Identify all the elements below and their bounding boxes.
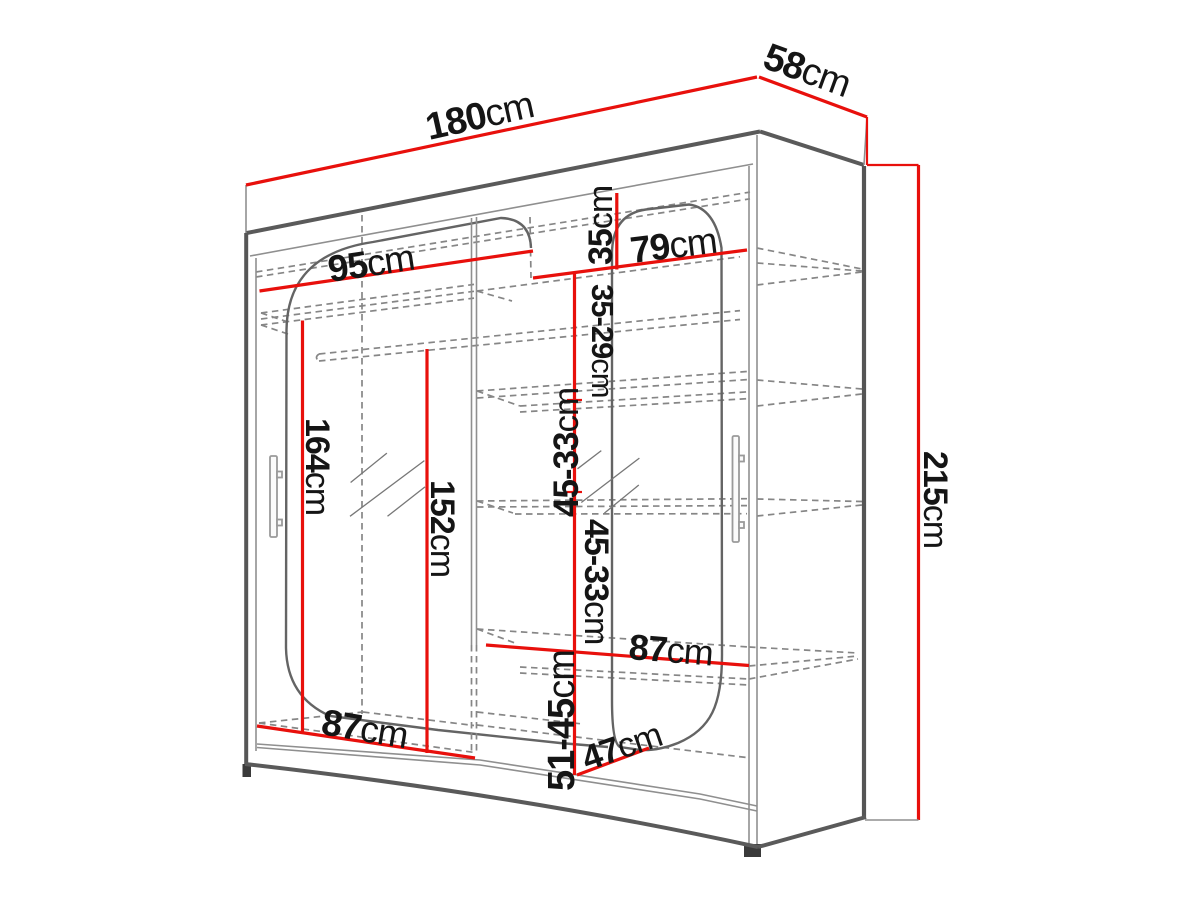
svg-text:47cm: 47cm	[577, 715, 667, 778]
svg-text:95cm: 95cm	[325, 237, 417, 290]
svg-text:152cm: 152cm	[423, 480, 461, 577]
svg-text:35cm: 35cm	[582, 186, 620, 265]
svg-text:45-33cm: 45-33cm	[547, 388, 586, 517]
svg-text:180cm: 180cm	[422, 84, 538, 149]
svg-text:45-33cm: 45-33cm	[577, 519, 615, 644]
svg-text:87cm: 87cm	[319, 701, 411, 756]
svg-text:87cm: 87cm	[627, 626, 714, 673]
svg-text:79cm: 79cm	[628, 220, 719, 271]
svg-text:51-45cm: 51-45cm	[541, 650, 583, 791]
svg-text:35-29cm: 35-29cm	[585, 284, 620, 398]
svg-text:215cm: 215cm	[916, 451, 954, 548]
svg-text:164cm: 164cm	[298, 418, 336, 515]
